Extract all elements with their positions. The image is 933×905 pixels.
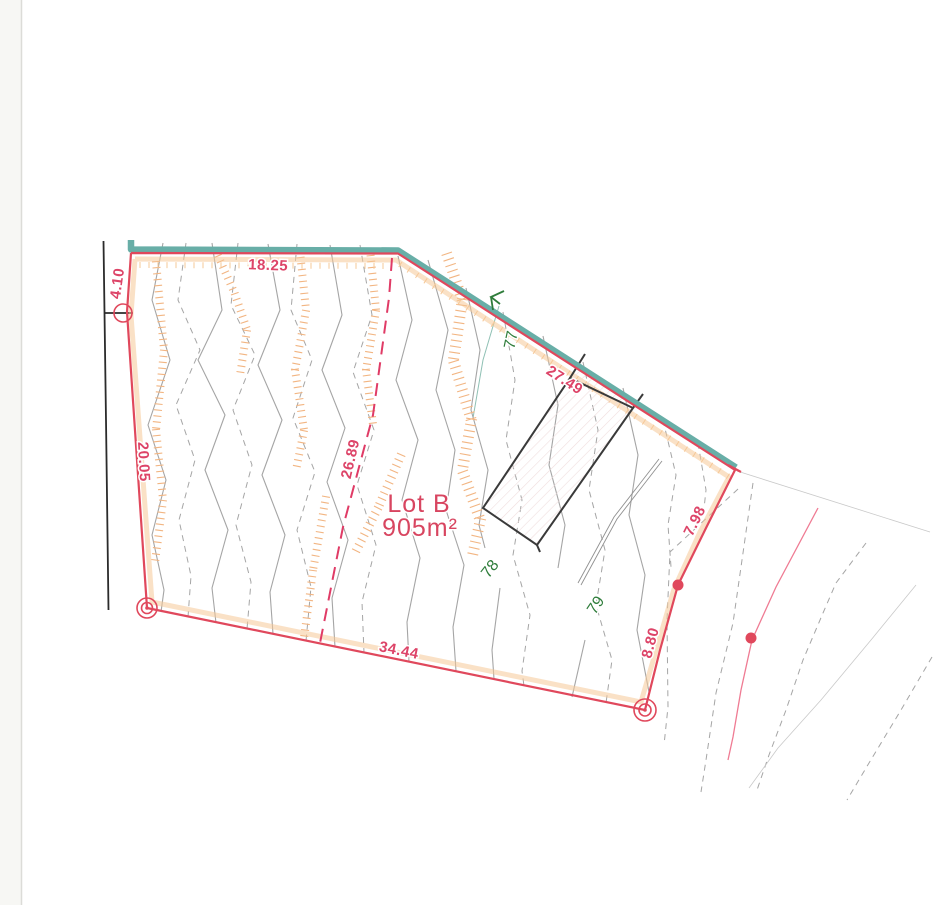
boundary-point-dot bbox=[673, 580, 684, 591]
site-plan: 18.25 4.10 20.05 26.89 27.49 34.44 7.98 … bbox=[0, 0, 933, 905]
contour-line bbox=[148, 243, 170, 612]
contour-lines bbox=[148, 243, 706, 703]
contour-label-77: 77 bbox=[501, 329, 521, 350]
slope-hatch-band bbox=[212, 249, 251, 373]
lot-title: Lot B 905m² bbox=[382, 490, 458, 542]
contour-line bbox=[176, 243, 200, 617]
dimension-division: 26.89 bbox=[338, 438, 364, 481]
dimension-labels: 18.25 4.10 20.05 26.89 27.49 34.44 7.98 … bbox=[107, 256, 709, 663]
contour-label-79: 79 bbox=[584, 593, 608, 617]
contour-line bbox=[749, 585, 916, 788]
boundary-point-dot bbox=[746, 633, 757, 644]
dimension-left: 20.05 bbox=[134, 441, 153, 482]
contour-line bbox=[231, 243, 255, 629]
dimension-bottom: 34.44 bbox=[378, 638, 421, 663]
contour-line bbox=[757, 543, 866, 790]
contour-line bbox=[258, 244, 285, 634]
contour-line bbox=[847, 657, 932, 800]
dimension-top: 18.25 bbox=[248, 256, 289, 274]
contour-label-78: 78 bbox=[478, 557, 502, 582]
boundary-inner-stripe bbox=[131, 259, 729, 702]
street-boundary-strip bbox=[131, 240, 736, 468]
dimension-top-left: 4.10 bbox=[107, 267, 128, 300]
neighbour-line bbox=[737, 471, 930, 532]
slope-hatch-band bbox=[291, 251, 310, 467]
contour-78-line bbox=[492, 588, 500, 679]
neighbour-boundary-line bbox=[728, 508, 818, 760]
contour-line bbox=[396, 256, 420, 662]
scanned-survey-plan: 18.25 4.10 20.05 26.89 27.49 34.44 7.98 … bbox=[0, 0, 933, 905]
benchmark-symbol bbox=[491, 291, 504, 310]
retaining-wall bbox=[578, 459, 662, 585]
lot-area-label: 905m² bbox=[382, 514, 458, 542]
scan-margin bbox=[0, 0, 21, 905]
contour-line bbox=[198, 243, 228, 623]
contour-line bbox=[701, 483, 753, 792]
slope-hatching bbox=[140, 249, 730, 637]
